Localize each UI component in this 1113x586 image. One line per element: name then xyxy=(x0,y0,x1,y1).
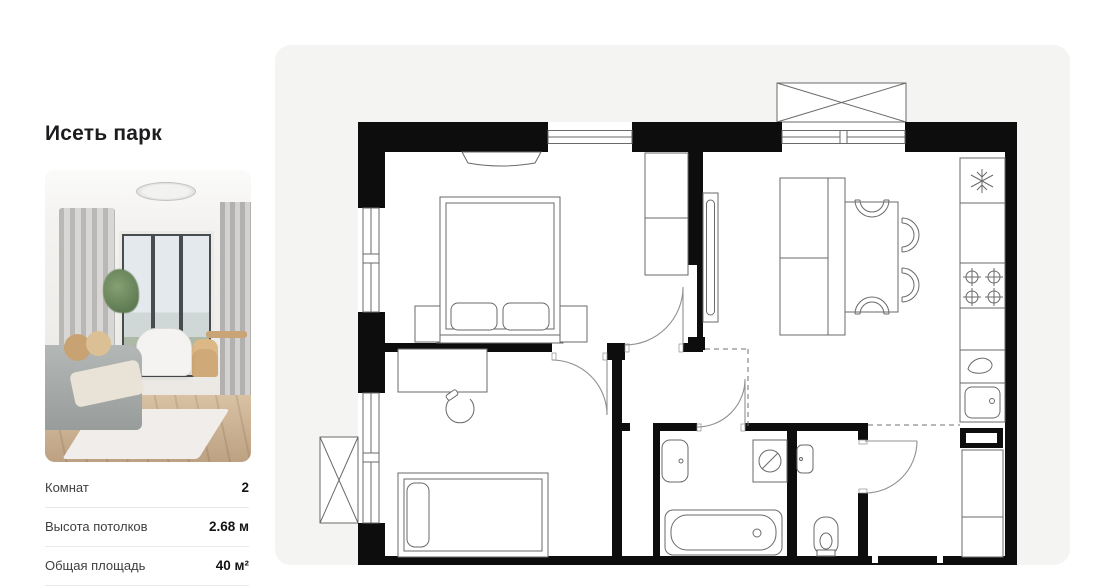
double-bed xyxy=(437,197,563,343)
corner-sink xyxy=(797,445,813,473)
washing-machine-icon xyxy=(753,440,787,482)
detail-row-ceiling-height: Высота потолков 2.68 м xyxy=(45,508,249,547)
floor-plan-drawing xyxy=(275,45,1070,565)
detail-label: Общая площадь xyxy=(45,558,145,573)
nightstand-left xyxy=(415,306,440,342)
kitchen-counter xyxy=(960,158,1005,557)
kitchen-sink xyxy=(965,387,1000,418)
detail-value: 2 xyxy=(241,480,249,495)
window-left-upper xyxy=(363,208,379,312)
window-left-lower xyxy=(363,393,379,523)
photo-armchair xyxy=(136,328,192,376)
window-kitchen-top xyxy=(782,131,905,144)
detail-label: Высота потолков xyxy=(45,519,148,534)
window-bedroom-top xyxy=(548,131,632,144)
detail-row-rooms: Комнат 2 xyxy=(45,480,249,508)
wall-shelf xyxy=(462,152,541,166)
wash-basin xyxy=(662,440,688,482)
wardrobe-cabinet xyxy=(645,153,688,275)
listing-page: { "sidebar": { "title": "Исеть парк", "p… xyxy=(0,0,1113,565)
desk xyxy=(398,349,487,392)
photo-pillow xyxy=(86,331,111,356)
balcony-top-icon xyxy=(777,83,906,122)
photo-ceiling-lamp xyxy=(136,182,196,201)
single-bed xyxy=(398,473,548,557)
detail-row-total-area: Общая площадь 40 м² xyxy=(45,547,249,586)
tv-panel xyxy=(703,193,718,322)
detail-label: Комнат xyxy=(45,480,89,495)
balcony-left-icon xyxy=(320,437,358,523)
sofa xyxy=(780,178,845,335)
toilet xyxy=(814,517,838,556)
nightstand-right xyxy=(560,306,587,342)
bathtub xyxy=(665,510,782,555)
tall-cabinet xyxy=(962,450,1003,557)
dining-table xyxy=(845,202,898,312)
photo-wooden-chair xyxy=(192,339,218,377)
detail-value: 40 м² xyxy=(216,558,249,573)
photo-plant xyxy=(103,269,139,313)
apartment-photo[interactable] xyxy=(45,170,251,462)
photo-table xyxy=(206,331,247,338)
detail-value: 2.68 м xyxy=(209,519,249,534)
floor-plan-panel xyxy=(275,45,1070,565)
listing-sidebar: Исеть парк Комнат 2 Высота потолков 2.68… xyxy=(0,0,275,565)
page-title: Исеть парк xyxy=(45,122,260,146)
property-details: Комнат 2 Высота потолков 2.68 м Общая пл… xyxy=(45,480,249,586)
